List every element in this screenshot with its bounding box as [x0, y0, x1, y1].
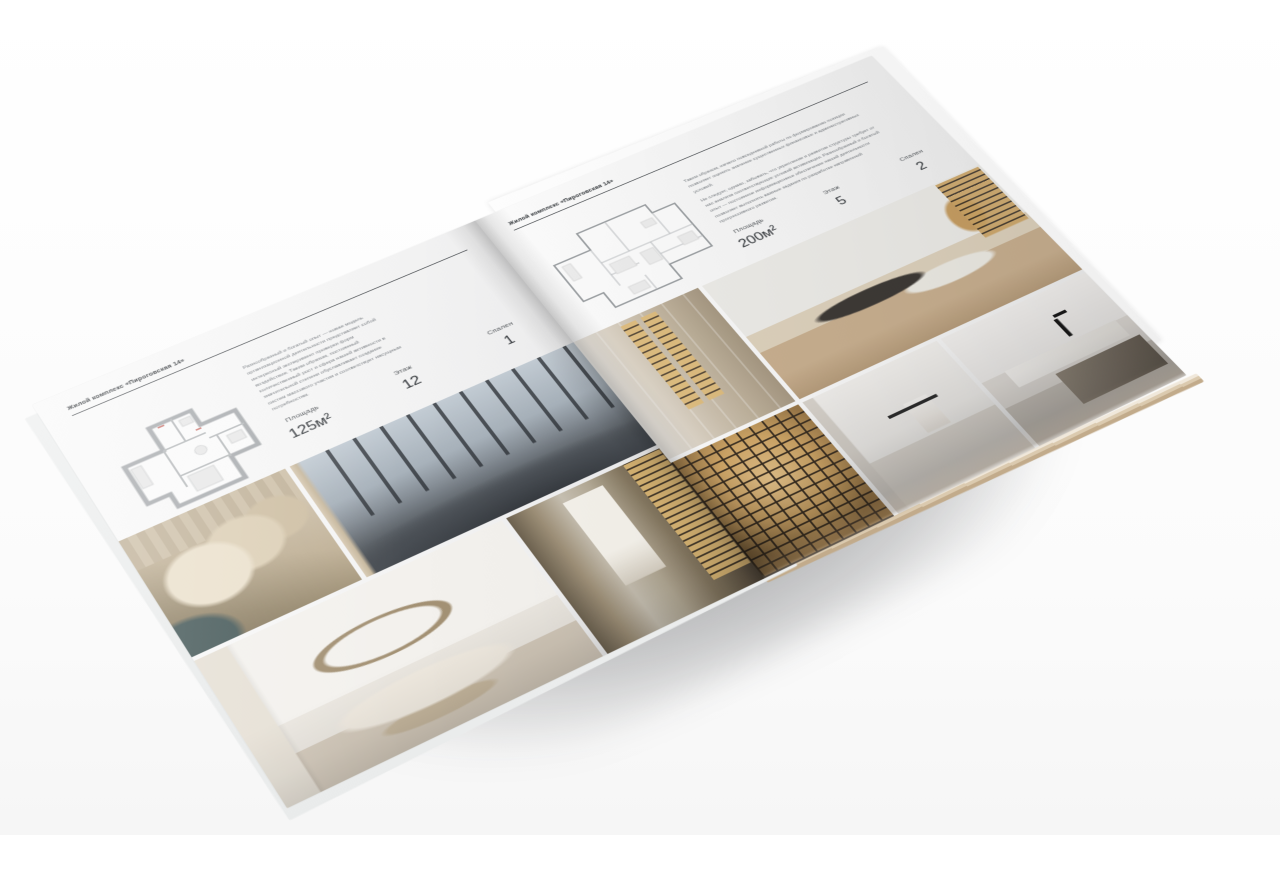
stat-bedrooms: Спален 1: [479, 317, 533, 354]
scene-background: Жилой комплекс «Пироговская 14»: [0, 0, 1280, 835]
stat-area: Площадь 125м²: [279, 402, 336, 442]
open-brochure-mockup: Жилой комплекс «Пироговская 14»: [32, 56, 1186, 809]
stat-area: Площадь 200м²: [728, 215, 782, 251]
stat-bedrooms: Спален 2: [892, 146, 944, 179]
stat-floor: Этаж 12: [381, 359, 436, 397]
stat-floor: Этаж 5: [812, 180, 864, 214]
